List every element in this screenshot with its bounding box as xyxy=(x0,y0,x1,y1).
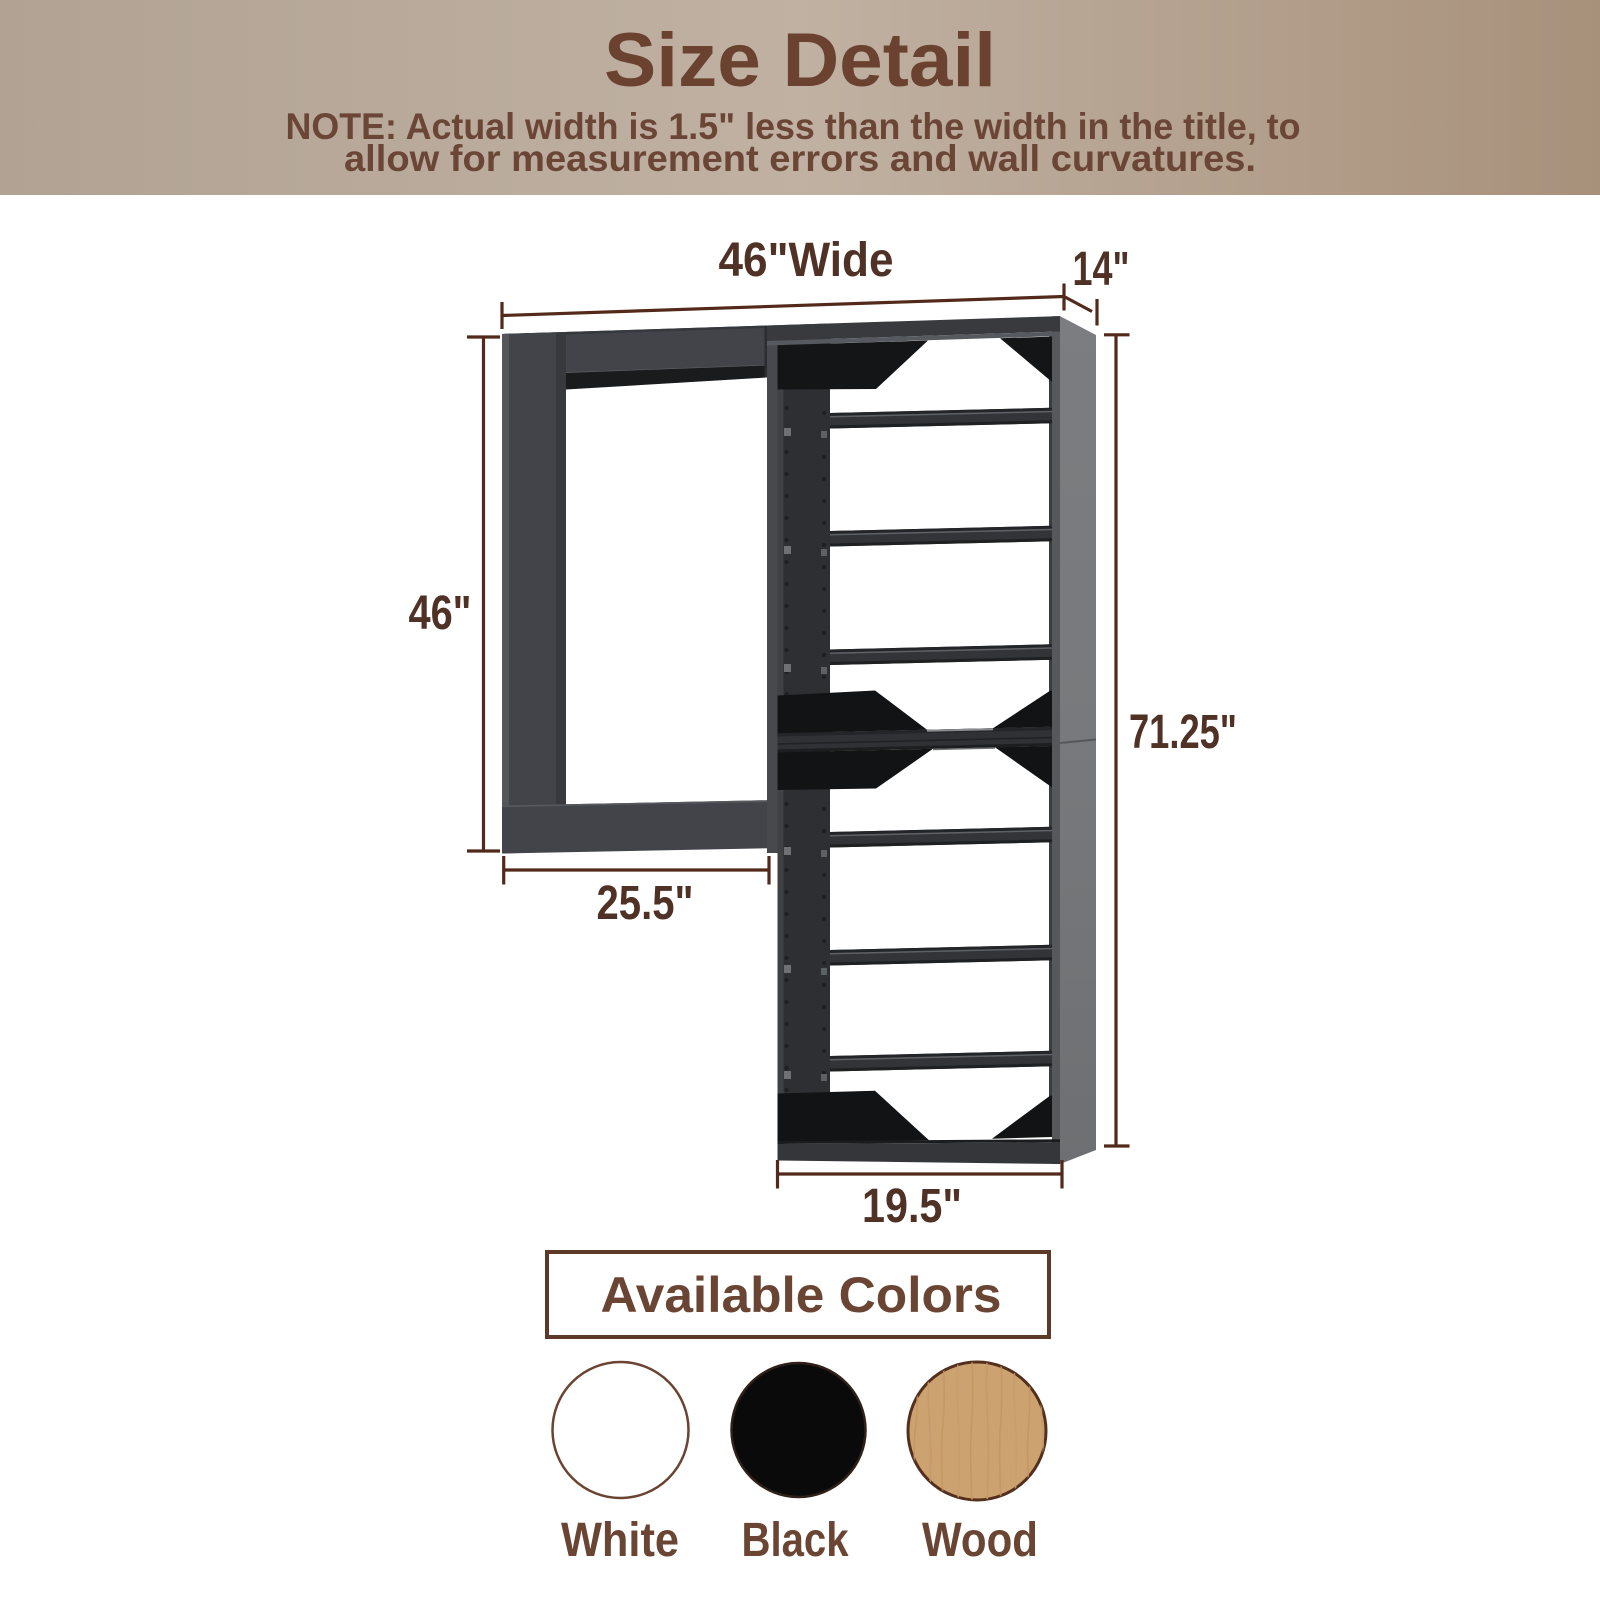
svg-text:46": 46" xyxy=(409,587,472,640)
svg-text:White: White xyxy=(561,1514,679,1567)
svg-text:71.25": 71.25" xyxy=(1129,706,1237,759)
svg-text:14": 14" xyxy=(1073,243,1130,296)
svg-text:Available Colors: Available Colors xyxy=(601,1267,1002,1323)
svg-text:46"Wide: 46"Wide xyxy=(719,234,894,287)
svg-text:allow for measurement errors a: allow for measurement errors and wall cu… xyxy=(344,138,1256,179)
svg-text:Wood: Wood xyxy=(922,1514,1038,1567)
svg-text:Black: Black xyxy=(742,1514,849,1567)
svg-text:25.5": 25.5" xyxy=(597,877,694,930)
svg-text:19.5": 19.5" xyxy=(862,1180,962,1233)
svg-text:Size Detail: Size Detail xyxy=(604,18,996,103)
